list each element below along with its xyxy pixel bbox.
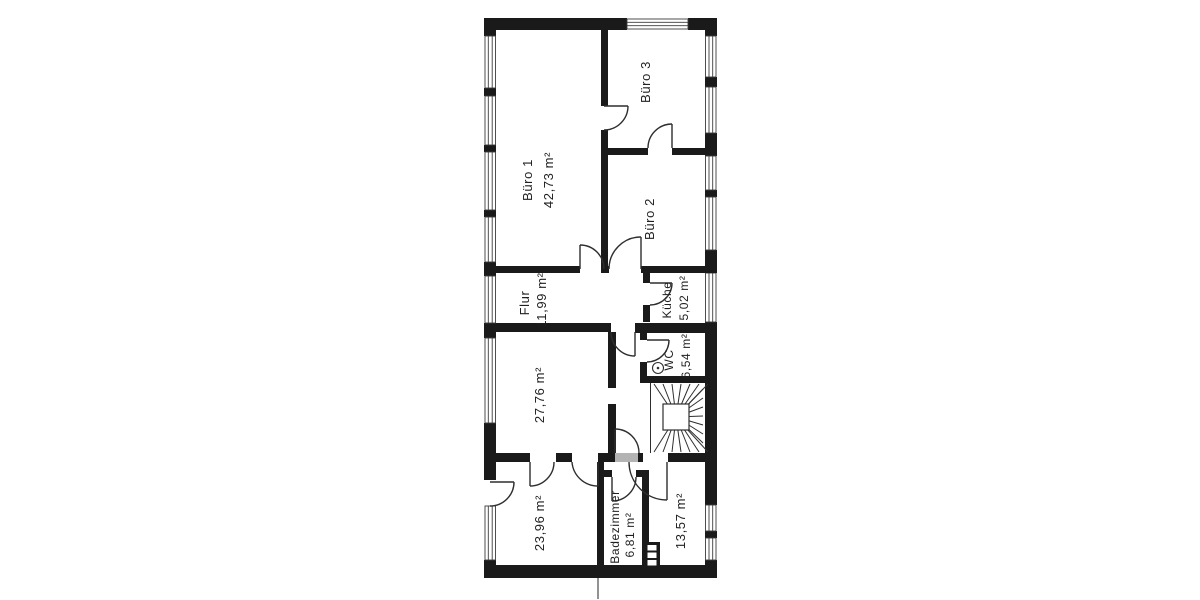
window xyxy=(485,276,496,323)
stair-hub xyxy=(663,404,689,430)
room-label-wc-name: WC xyxy=(662,349,676,370)
door xyxy=(648,124,672,148)
room-label-kueche-area: 5,02 m² xyxy=(677,276,691,321)
room-label-wc-area: 6,54 m² xyxy=(679,334,693,379)
window xyxy=(485,217,496,262)
room-label-buero2-name: Büro 2 xyxy=(642,198,657,240)
window xyxy=(485,96,496,145)
window xyxy=(485,506,496,560)
window xyxy=(706,273,717,322)
window xyxy=(706,197,717,250)
window xyxy=(706,87,717,133)
floor-plan: Büro 1 42,73 m² Büro 3 Büro 2 Flur 11,99… xyxy=(0,0,1200,600)
room-label-buero1-area: 42,73 m² xyxy=(541,152,556,208)
room-label-flur-name: Flur xyxy=(517,291,532,316)
door xyxy=(530,462,554,486)
room-label-buero1-name: Büro 1 xyxy=(520,159,535,201)
window xyxy=(706,505,717,531)
page-canvas: Büro 1 42,73 m² Büro 3 Büro 2 Flur 11,99… xyxy=(0,0,1200,600)
window xyxy=(706,36,717,77)
room-label-buero3-name: Büro 3 xyxy=(638,61,653,103)
duct-grid-icon xyxy=(644,542,660,566)
staircase xyxy=(651,383,709,453)
door xyxy=(615,429,639,453)
door xyxy=(604,106,628,130)
door xyxy=(490,482,514,506)
room-label-kueche-name: Küche xyxy=(660,281,674,318)
window xyxy=(485,152,496,210)
room-label-badezimmer-area: 6,81 m² xyxy=(623,513,637,558)
light-wall-segment xyxy=(615,453,638,462)
door xyxy=(572,462,598,486)
room-label-flur-area: 11,99 m² xyxy=(534,272,549,327)
window xyxy=(706,156,717,190)
window xyxy=(485,36,496,88)
door xyxy=(580,245,604,269)
room-label-2776-area: 27,76 m² xyxy=(532,367,547,423)
window xyxy=(485,338,496,423)
window xyxy=(627,19,688,29)
room-label-badezimmer-name: Badezimmer xyxy=(608,490,622,563)
door xyxy=(609,237,641,269)
room-label-2396-area: 23,96 m² xyxy=(532,495,547,551)
window xyxy=(706,538,717,560)
room-label-1357-area: 13,57 m² xyxy=(673,493,688,549)
